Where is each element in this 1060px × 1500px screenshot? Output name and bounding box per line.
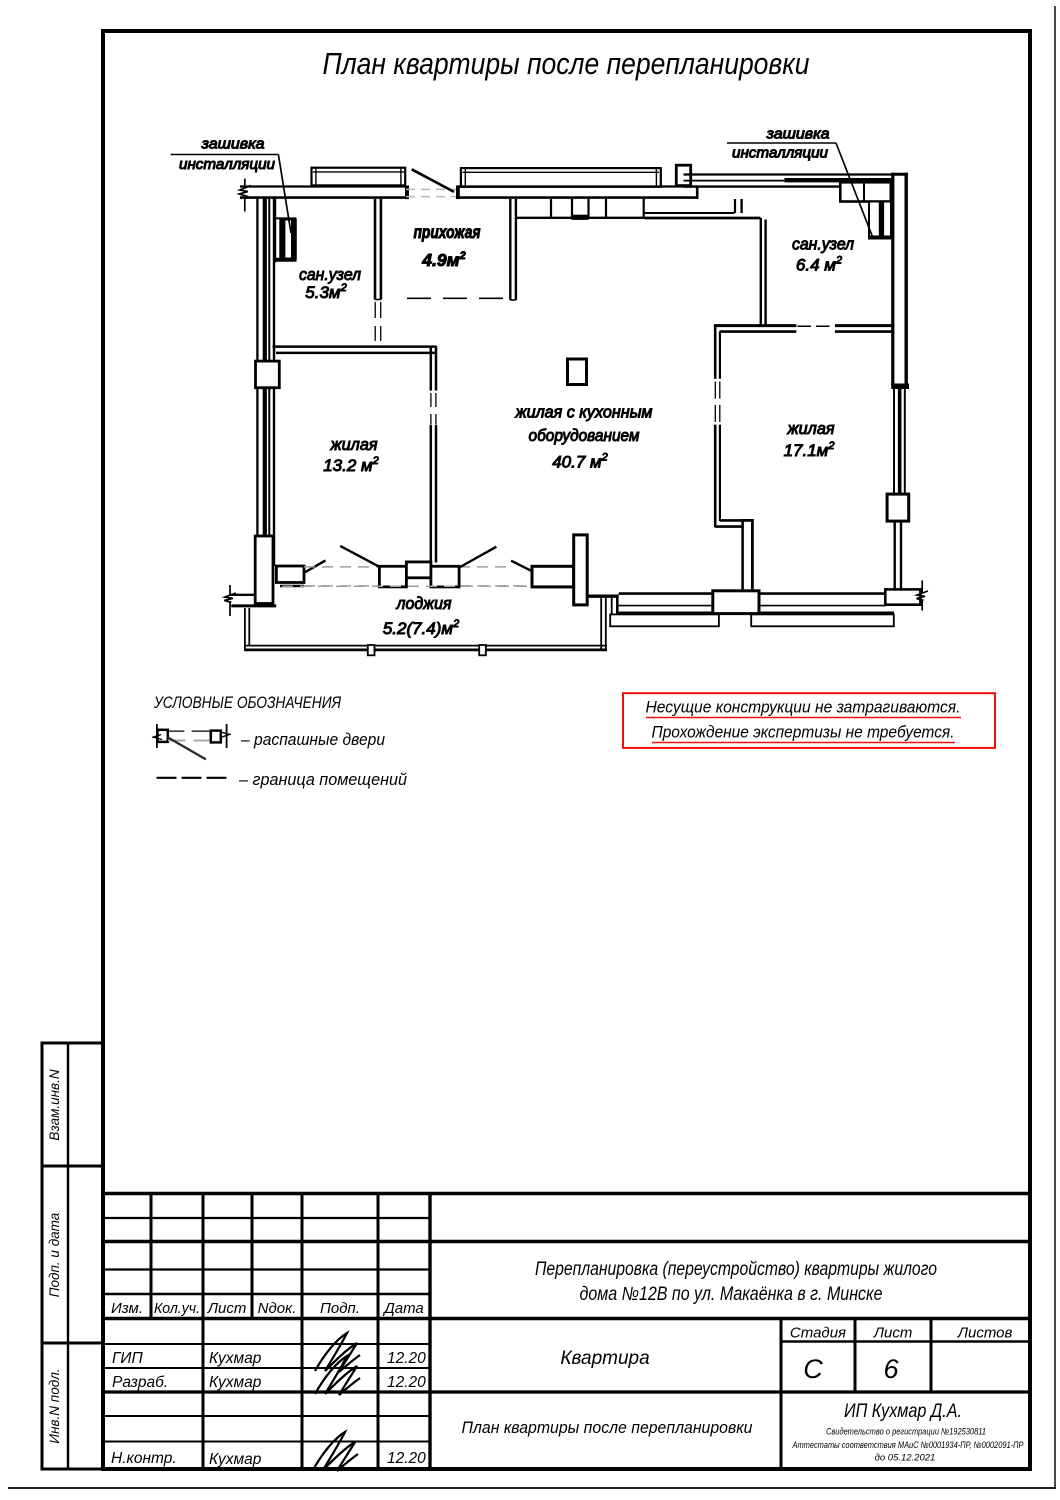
- svg-text:Лист: Лист: [873, 1325, 913, 1342]
- svg-text:УСЛОВНЫЕ ОБОЗНАЧЕНИЯ: УСЛОВНЫЕ ОБОЗНАЧЕНИЯ: [153, 694, 341, 712]
- svg-text:Н.контр.: Н.контр.: [111, 1450, 177, 1467]
- svg-text:План квартиры после перепланир: План квартиры после перепланировки: [462, 1418, 753, 1437]
- svg-text:12.20: 12.20: [387, 1450, 426, 1467]
- svg-text:жилая: жилая: [787, 419, 835, 438]
- svg-text:Инв.N подл.: Инв.N подл.: [47, 1368, 62, 1443]
- svg-text:Взам.инв.N: Взам.инв.N: [47, 1069, 62, 1140]
- svg-text:План квартиры после перепланир: План квартиры после перепланировки: [323, 46, 810, 81]
- svg-text:сан.узел: сан.узел: [792, 235, 854, 254]
- svg-text:Стадия: Стадия: [790, 1325, 846, 1342]
- svg-text:ГИП: ГИП: [112, 1350, 144, 1367]
- svg-text:С: С: [803, 1354, 823, 1384]
- svg-text:5.3м2: 5.3м2: [305, 282, 346, 302]
- svg-text:зашивка: зашивка: [200, 137, 264, 153]
- svg-text:до 05.12.2021: до 05.12.2021: [875, 1453, 936, 1464]
- svg-text:Подп. и дата: Подп. и дата: [47, 1212, 62, 1297]
- svg-text:Кухмар: Кухмар: [209, 1350, 262, 1367]
- svg-text:лоджия: лоджия: [396, 594, 452, 613]
- svg-text:12.20: 12.20: [387, 1350, 426, 1367]
- svg-text:– распашные двери: – распашные двери: [240, 731, 385, 749]
- svg-text:жилая с кухонным: жилая с кухонным: [515, 403, 653, 422]
- svg-text:Аттестаты соответствия МАиС №0: Аттестаты соответствия МАиС №0001934-ПР,…: [792, 1440, 1024, 1451]
- svg-text:Кол.уч.: Кол.уч.: [154, 1300, 200, 1317]
- svg-text:Квартира: Квартира: [560, 1348, 649, 1369]
- svg-text:жилая: жилая: [330, 435, 378, 454]
- svg-text:инсталляции: инсталляции: [179, 157, 275, 173]
- svg-text:12.20: 12.20: [387, 1374, 426, 1391]
- svg-text:Перепланировка (переустройство: Перепланировка (переустройство) квартиры…: [535, 1259, 937, 1280]
- svg-text:4.9м2: 4.9м2: [421, 250, 465, 270]
- svg-text:– граница помещений: – граница помещений: [238, 771, 407, 789]
- svg-text:Дата: Дата: [382, 1300, 424, 1317]
- svg-text:прихожая: прихожая: [414, 222, 481, 242]
- svg-text:сан.узел: сан.узел: [299, 265, 361, 284]
- svg-text:6.4 м2: 6.4 м2: [796, 255, 842, 275]
- svg-text:17.1м2: 17.1м2: [784, 440, 835, 460]
- svg-text:Изм.: Изм.: [111, 1300, 143, 1317]
- svg-text:40.7 м2: 40.7 м2: [552, 452, 608, 472]
- svg-text:6: 6: [883, 1354, 899, 1384]
- svg-text:13.2 м2: 13.2 м2: [323, 455, 379, 475]
- svg-text:Листов: Листов: [957, 1325, 1013, 1342]
- svg-text:оборудованием: оборудованием: [529, 426, 640, 445]
- svg-text:Кухмар: Кухмар: [209, 1451, 262, 1468]
- svg-text:Кухмар: Кухмар: [209, 1374, 262, 1391]
- svg-text:инсталляции: инсталляции: [732, 146, 828, 162]
- svg-text:Несущие конструкции не затраги: Несущие конструкции не затрагиваются.: [646, 698, 961, 717]
- svg-text:Nдок.: Nдок.: [258, 1300, 297, 1317]
- svg-text:Лист: Лист: [207, 1300, 247, 1317]
- svg-text:Прохождение экспертизы не треб: Прохождение экспертизы не требуется.: [652, 723, 955, 742]
- svg-text:дома №12В по ул. Макаёнка в г.: дома №12В по ул. Макаёнка в г. Минске: [580, 1284, 883, 1305]
- svg-text:Свидетельство о регистрации №1: Свидетельство о регистрации №192530811: [826, 1427, 986, 1438]
- svg-text:зашивка: зашивка: [765, 127, 829, 143]
- svg-text:Подп.: Подп.: [320, 1300, 360, 1317]
- svg-text:5.2(7.4)м2: 5.2(7.4)м2: [383, 618, 459, 638]
- svg-text:Разраб.: Разраб.: [112, 1374, 168, 1391]
- svg-text:ИП Кухмар Д.А.: ИП Кухмар Д.А.: [844, 1401, 962, 1422]
